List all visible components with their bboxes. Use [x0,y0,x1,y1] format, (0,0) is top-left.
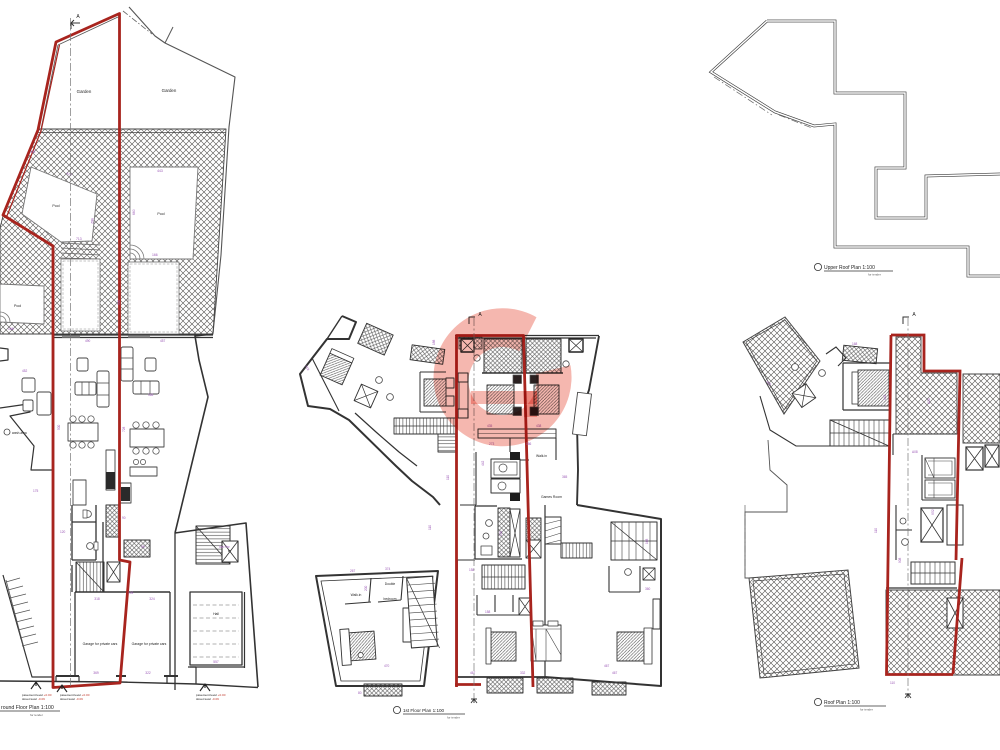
svg-text:175: 175 [33,489,39,493]
svg-text:200: 200 [364,585,368,591]
svg-text:168: 168 [645,538,649,544]
svg-text:wash.area: wash.area [12,431,27,435]
svg-text:374: 374 [385,567,391,571]
svg-text:Garage for private cars: Garage for private cars [83,642,118,646]
svg-text:369: 369 [93,671,99,675]
svg-text:round Floor Plan 1:100: round Floor Plan 1:100 [1,705,54,711]
svg-text:1st Floor Plan 1:100: 1st Floor Plan 1:100 [403,708,445,713]
svg-text:186: 186 [526,442,532,446]
svg-text:A08: A08 [912,450,918,454]
svg-text:500: 500 [57,424,61,430]
svg-text:322: 322 [145,671,151,675]
svg-text:660: 660 [132,209,136,215]
svg-text:110: 110 [874,528,878,533]
svg-text:110: 110 [890,681,895,685]
svg-text:557: 557 [213,660,219,664]
svg-text:55: 55 [141,545,145,549]
svg-text:street level -0.09: street level -0.09 [60,697,83,701]
svg-text:318: 318 [94,597,100,601]
svg-text:V52: V52 [931,509,935,515]
svg-text:Garden: Garden [77,89,92,94]
svg-text:230: 230 [499,530,503,536]
svg-text:452: 452 [22,369,28,373]
svg-text:457: 457 [160,339,166,343]
svg-text:962: 962 [90,218,94,224]
svg-text:Games Room: Games Room [541,495,562,499]
svg-text:street level -0.09: street level -0.09 [22,697,45,701]
svg-text:80: 80 [358,691,362,695]
svg-text:110: 110 [446,475,450,480]
svg-text:Pool: Pool [52,204,59,208]
svg-text:for tender: for tender [30,713,43,717]
svg-text:bedroom: bedroom [383,597,396,601]
svg-text:920: 920 [117,299,121,305]
svg-text:713: 713 [76,237,82,241]
svg-text:365: 365 [562,475,568,479]
svg-text:142: 142 [883,394,887,400]
svg-text:442: 442 [481,460,485,466]
svg-text:120: 120 [60,530,66,534]
svg-text:166: 166 [8,327,14,331]
svg-text:Upper Roof Plan 1:100: Upper Roof Plan 1:100 [824,265,875,271]
svg-text:Garden: Garden [162,88,177,93]
svg-text:for tender: for tender [447,716,460,720]
svg-text:A20: A20 [927,398,931,404]
svg-text:467: 467 [612,671,618,675]
svg-text:158: 158 [485,610,491,614]
svg-text:90: 90 [122,516,126,520]
svg-text:467: 467 [470,671,476,675]
svg-text:490: 490 [85,339,91,343]
svg-text:110: 110 [428,525,432,530]
svg-text:467: 467 [604,664,610,668]
svg-text:168: 168 [852,342,858,346]
svg-text:188: 188 [432,339,436,345]
svg-text:Hall: Hall [213,612,219,616]
svg-text:Walk.in: Walk.in [536,454,547,458]
svg-text:324: 324 [149,597,155,601]
svg-text:166: 166 [152,253,158,257]
svg-text:for tender: for tender [868,273,881,277]
svg-text:Double: Double [385,582,396,586]
svg-text:low Par: low Par [219,545,231,549]
svg-text:street level -0.09: street level -0.09 [196,697,219,701]
svg-text:Pool: Pool [157,212,164,216]
svg-text:Pool: Pool [14,304,21,308]
svg-text:470: 470 [384,664,390,668]
svg-text:360: 360 [645,587,651,591]
svg-text:728: 728 [122,426,126,432]
svg-text:Roof Plan 1:100: Roof Plan 1:100 [824,700,860,706]
svg-text:443: 443 [157,169,163,173]
svg-text:267: 267 [350,569,356,573]
svg-text:908: 908 [898,557,902,563]
svg-text:Walk.in: Walk.in [351,593,362,597]
svg-text:Garage for private cars: Garage for private cars [132,642,167,646]
svg-text:lift: lift [228,549,231,553]
svg-text:332: 332 [520,671,526,675]
svg-text:109: 109 [128,591,134,595]
svg-text:365: 365 [148,393,154,397]
svg-text:453: 453 [30,150,36,154]
svg-text:for tender: for tender [860,708,873,712]
